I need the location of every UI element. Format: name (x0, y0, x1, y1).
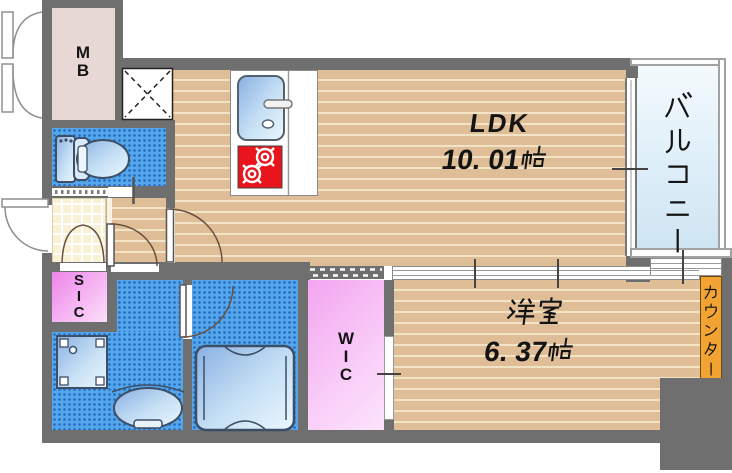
toilet-fixture (56, 136, 129, 182)
refrigerator-space (123, 69, 173, 120)
washing-machine (57, 336, 107, 388)
walk-in-closet-label: WIC (326, 330, 366, 384)
western-room-name (432, 297, 637, 332)
kitchen-sink (238, 76, 292, 140)
ldk-label: LDK 10. 01 (392, 108, 602, 176)
stove (238, 146, 282, 188)
front-door (2, 199, 48, 251)
meter-box-label: MB (63, 44, 103, 80)
bathroom-door (180, 285, 233, 337)
western-room-label: 6. 37 (427, 297, 637, 368)
wic-open-dashes (310, 270, 382, 276)
bathtub (196, 346, 294, 430)
balcony-label (662, 92, 694, 260)
ldk-door (167, 209, 223, 262)
western-room-size: 6. 37 (427, 336, 632, 368)
vanity-sink (112, 385, 184, 428)
mb-doors (2, 12, 42, 118)
shoe-closet-label: SIC (59, 273, 99, 320)
fixture-linework (0, 0, 732, 473)
washroom-door (107, 224, 157, 266)
floorplan-canvas: LDK 10. 01 6. 37 MB SIC WIC (0, 0, 732, 473)
sic-doors (62, 225, 104, 263)
ldk-size: 10. 01 (392, 144, 597, 176)
counter-label (703, 284, 720, 380)
bedroom-window-tracks (651, 264, 721, 269)
ldk-name: LDK (397, 108, 601, 139)
partition-tracks (393, 271, 699, 276)
